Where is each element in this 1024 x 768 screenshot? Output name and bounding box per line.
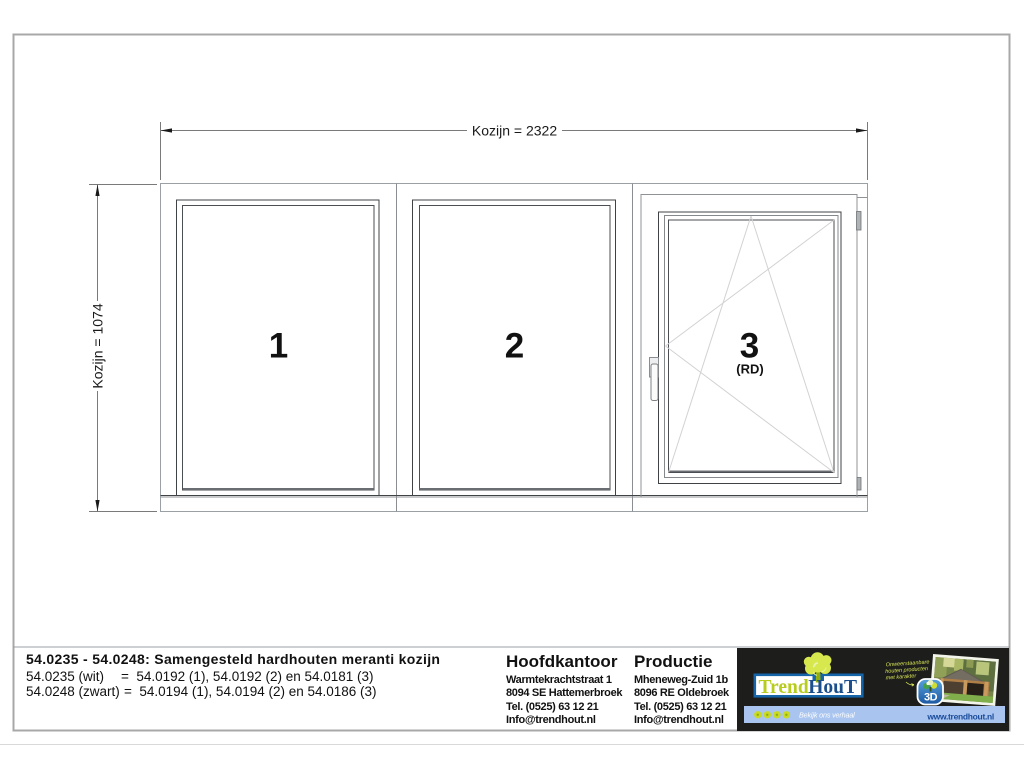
svg-text:2: 2 [505,327,524,366]
svg-text:3: 3 [740,327,759,366]
svg-text:met karakter: met karakter [886,673,918,681]
svg-text:3D: 3D [924,692,938,704]
svg-text:TrendHouT: TrendHouT [759,677,858,698]
svg-text:Bekijk ons verhaal: Bekijk ons verhaal [799,711,855,720]
svg-text:(RD): (RD) [736,362,763,377]
svg-text:Kozijn = 1074: Kozijn = 1074 [90,303,106,388]
svg-text:1: 1 [269,327,288,366]
svg-text:Kozijn = 2322: Kozijn = 2322 [472,123,557,139]
svg-text:www.trendhout.nl: www.trendhout.nl [926,712,994,722]
